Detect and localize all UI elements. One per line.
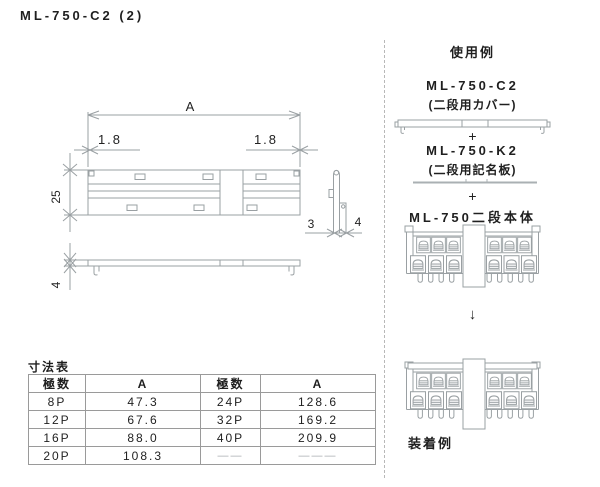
poles-cell: 12P [29, 411, 86, 429]
poles-cell: 16P [29, 429, 86, 447]
col-header-poles-2: 極数 [201, 375, 261, 393]
a-value-cell: 209.9 [261, 429, 376, 447]
cover-part-name: ML-750-C2 [390, 78, 555, 93]
poles-cell: 32P [201, 411, 261, 429]
plus-sign-1: + [390, 128, 555, 144]
dimension-drawing: A 1.8 1.8 [0, 85, 380, 385]
table-row: 16P 88.0 40P 209.9 [29, 429, 376, 447]
col-header-a-1: A [86, 375, 201, 393]
cover-part-desc: (二段用カバー) [390, 96, 555, 113]
table-row: 8P 47.3 24P 128.6 [29, 393, 376, 411]
poles-cell: 20P [29, 447, 86, 465]
dimension-table: 極数 A 極数 A 8P 47.3 24P 128.6 12P 67.6 32P… [28, 374, 376, 465]
dim-25-lines [63, 153, 90, 232]
dim-3-label: 3 [308, 217, 315, 231]
mounted-example-label: 装着例 [408, 433, 453, 452]
empty-cell: ——— [261, 447, 376, 465]
usage-title: 使用例 [390, 42, 555, 61]
col-header-a-2: A [261, 375, 376, 393]
plate-part-name: ML-750-K2 [390, 143, 555, 158]
dim-1p8-right-lines [246, 146, 318, 154]
poles-cell: 8P [29, 393, 86, 411]
dim-1p8-left-lines [74, 146, 140, 154]
dim-table-title: 寸法表 [28, 358, 70, 375]
table-header-row: 極数 A 極数 A [29, 375, 376, 393]
plate-part-desc: (二段用記名板) [390, 161, 555, 178]
a-value-cell: 128.6 [261, 393, 376, 411]
section-divider [384, 40, 385, 478]
a-value-cell: 88.0 [86, 429, 201, 447]
down-arrow: ↓ [390, 306, 555, 323]
bottom-view [88, 260, 300, 275]
a-value-cell: 47.3 [86, 393, 201, 411]
empty-cell: —— [201, 447, 261, 465]
dim-4-side-label: 4 [355, 215, 362, 229]
dim-1p8-right-label: 1.8 [254, 132, 278, 147]
a-value-cell: 108.3 [86, 447, 201, 465]
dim-1p8-left-label: 1.8 [98, 132, 122, 147]
poles-cell: 40P [201, 429, 261, 447]
plus-sign-2: + [390, 188, 555, 204]
table-row: 20P 108.3 —— ——— [29, 447, 376, 465]
page-title: ML-750-C2 (2) [20, 8, 144, 23]
a-value-cell: 169.2 [261, 411, 376, 429]
marking-plate-drawing [390, 178, 555, 186]
dim-4-bottom-label: 4 [49, 281, 63, 288]
usage-example-panel: 使用例 ML-750-C2 (二段用カバー) + ML-750-K2 (二段用記… [390, 40, 555, 460]
dim-4-bottom-lines [64, 243, 90, 290]
col-header-poles-1: 極数 [29, 375, 86, 393]
table-row: 12P 67.6 32P 169.2 [29, 411, 376, 429]
dim-a-label: A [186, 99, 197, 114]
terminal-block-drawing [390, 224, 555, 294]
dim-25-label: 25 [49, 190, 63, 204]
mounted-assembly-drawing [390, 352, 555, 432]
poles-cell: 24P [201, 393, 261, 411]
front-view [88, 170, 300, 215]
a-value-cell: 67.6 [86, 411, 201, 429]
